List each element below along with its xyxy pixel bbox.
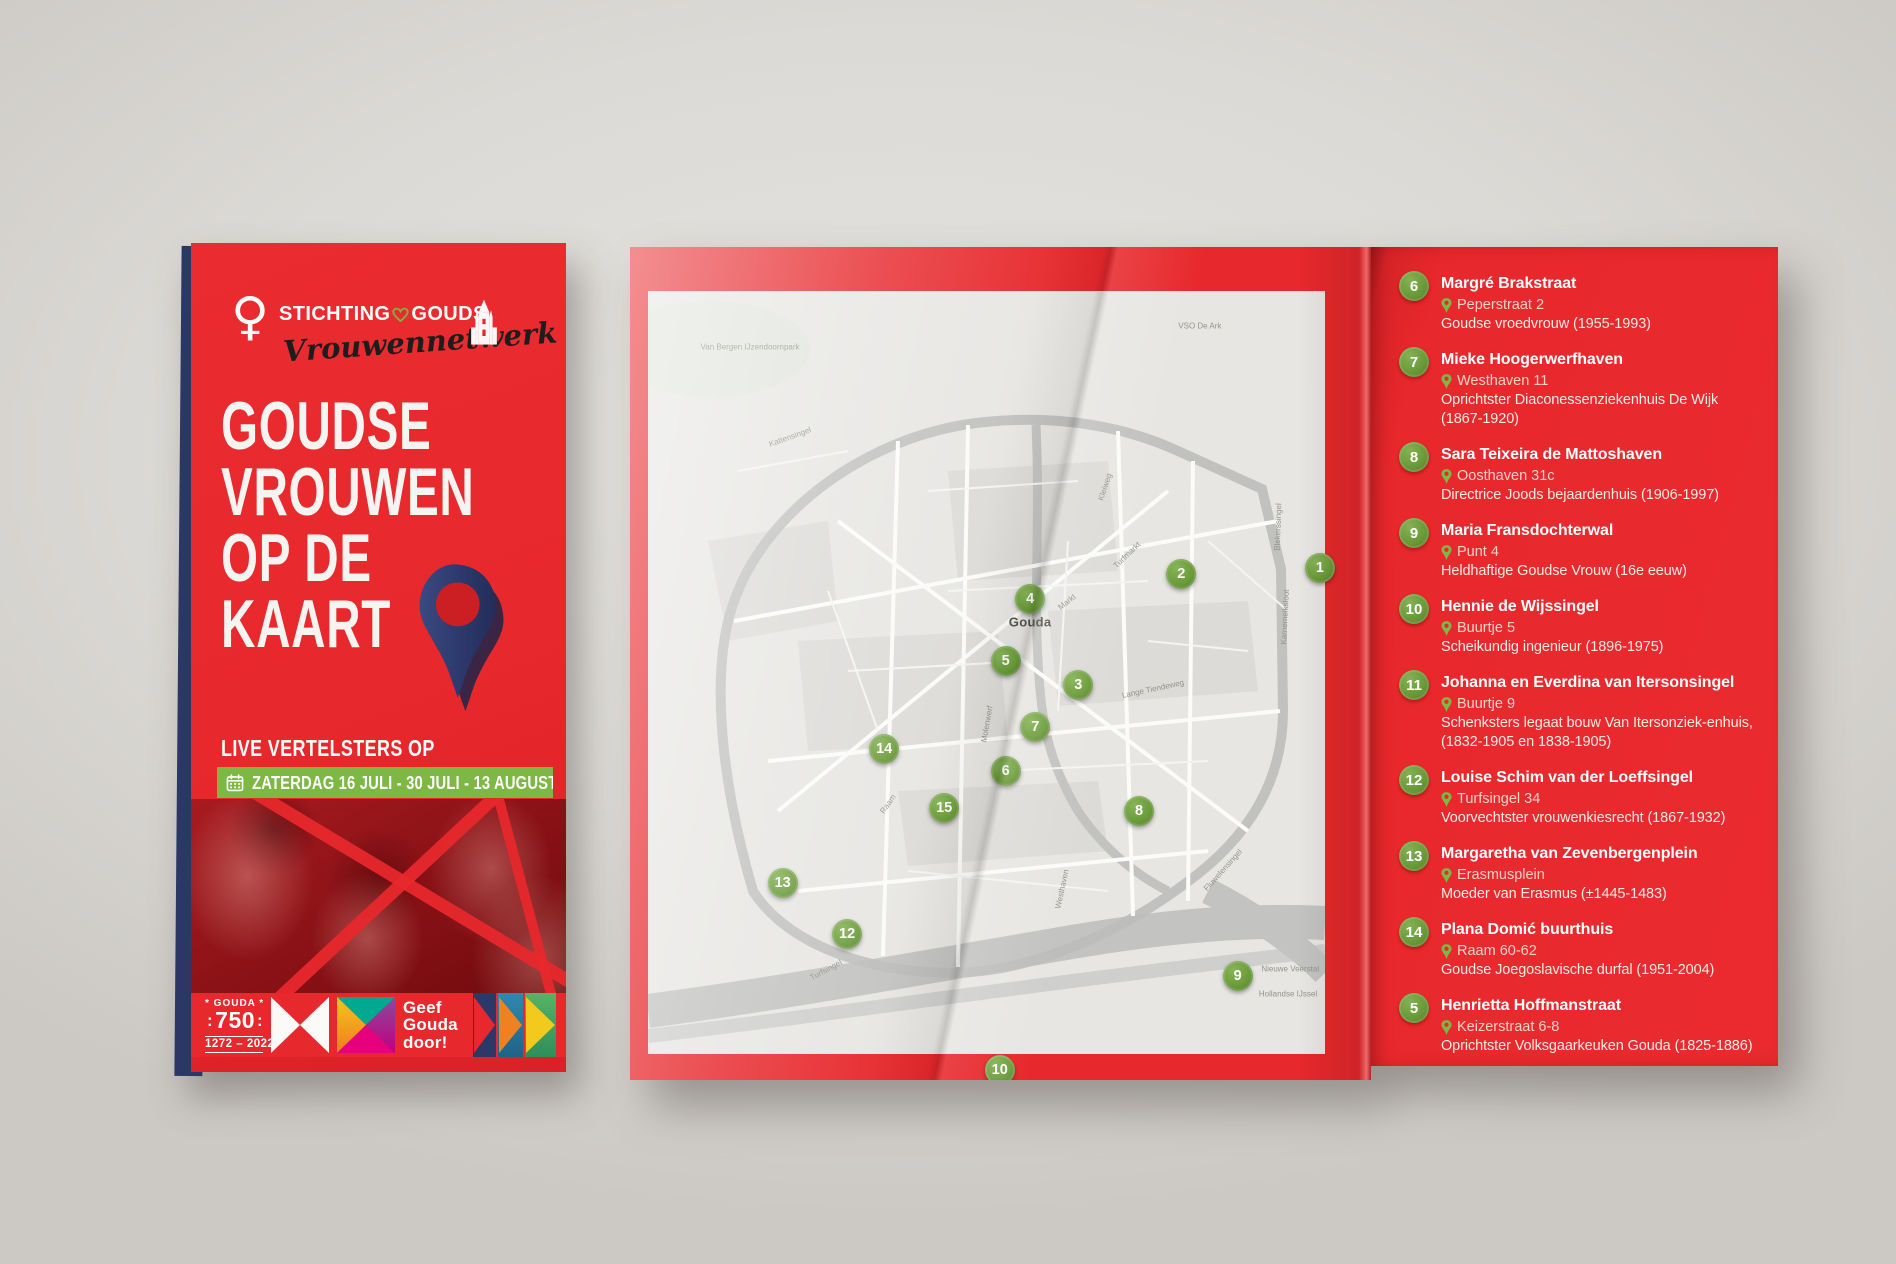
location-address: Westhaven 11 bbox=[1441, 371, 1763, 391]
location-name: Maria Fransdochterwal bbox=[1441, 520, 1763, 542]
location-name: Sara Teixeira de Mattoshaven bbox=[1441, 444, 1763, 466]
location-description: Oprichtster Diaconessenziekenhuis De Wij… bbox=[1441, 391, 1763, 429]
location-address: Keizerstraat 6-8 bbox=[1441, 1017, 1763, 1037]
location-list-item: 12 Louise Schim van der Loeffsingel Turf… bbox=[1399, 767, 1763, 828]
location-pin-icon bbox=[1441, 298, 1452, 313]
location-pin-icon bbox=[1441, 792, 1452, 807]
female-symbol-icon: ♀ bbox=[231, 291, 269, 343]
location-name: Margaretha van Zevenbergenplein bbox=[1441, 843, 1763, 865]
location-text: Margaretha van Zevenbergenplein Erasmusp… bbox=[1441, 843, 1763, 904]
map-page: Van Bergen IJzendoornpark VSO De Ark Kat… bbox=[630, 247, 1371, 1080]
footer-logo-strip: * GOUDA * 750 1272 – 2022 Geef Gouda doo… bbox=[191, 993, 566, 1057]
location-address-text: Buurtje 5 bbox=[1457, 618, 1515, 638]
location-text: Louise Schim van der Loeffsingel Turfsin… bbox=[1441, 767, 1763, 828]
gouda750-logo: * GOUDA * 750 1272 – 2022 bbox=[205, 998, 263, 1053]
location-name: Johanna en Everdina van Itersonsingel bbox=[1441, 672, 1763, 694]
location-address: Raam 60-62 bbox=[1441, 941, 1763, 961]
photo-collage bbox=[191, 799, 566, 993]
location-address: Turfsingel 34 bbox=[1441, 789, 1763, 809]
slogan-line: Gouda bbox=[403, 1016, 458, 1034]
location-pin-icon bbox=[1441, 374, 1452, 389]
slogan-line: door! bbox=[403, 1034, 458, 1052]
slogan-line: Geef bbox=[403, 999, 458, 1017]
location-address-text: Keizerstraat 6-8 bbox=[1457, 1017, 1559, 1037]
location-list-item: 8 Sara Teixeira de Mattoshaven Oosthaven… bbox=[1399, 444, 1763, 505]
location-pin-icon bbox=[1441, 697, 1452, 712]
gouda750-number: 750 bbox=[205, 1009, 263, 1034]
location-text: Maria Fransdochterwal Punt 4 Heldhaftige… bbox=[1441, 520, 1763, 581]
location-address-text: Raam 60-62 bbox=[1457, 941, 1537, 961]
location-name: Louise Schim van der Loeffsingel bbox=[1441, 767, 1763, 789]
location-pin-icon bbox=[1441, 1020, 1452, 1035]
location-list-item: 6 Margré Brakstraat Peperstraat 2 Goudse… bbox=[1399, 273, 1763, 334]
location-text: Margré Brakstraat Peperstraat 2 Goudse v… bbox=[1441, 273, 1763, 334]
front-cover-flyer: ♀ STICHTING GOUDS Vrouwennetwerk bbox=[178, 243, 566, 1072]
location-pin-icon bbox=[1441, 944, 1452, 959]
arrow-icon bbox=[526, 997, 555, 1053]
arrow-tile-orange bbox=[498, 993, 523, 1057]
bowtie-logo-color bbox=[337, 997, 395, 1053]
location-number-badge: 11 bbox=[1399, 670, 1429, 700]
location-list-item: 11 Johanna en Everdina van Itersonsingel… bbox=[1399, 672, 1763, 752]
map-artwork bbox=[648, 291, 1325, 1054]
org-logo-text: STICHTING GOUDS Vrouwennetwerk bbox=[279, 303, 487, 326]
org-prefix: STICHTING bbox=[279, 303, 390, 326]
location-description: Scheikundig ingenieur (1896-1975) bbox=[1441, 638, 1763, 657]
arrow-tiles bbox=[473, 993, 556, 1057]
location-address-text: Erasmusplein bbox=[1457, 865, 1545, 885]
location-text: Mieke Hoogerwerfhaven Westhaven 11 Opric… bbox=[1441, 349, 1763, 429]
arrow-icon bbox=[499, 997, 522, 1053]
location-address: Erasmusplein bbox=[1441, 865, 1763, 885]
location-description: Moeder van Erasmus (±1445-1483) bbox=[1441, 885, 1763, 904]
location-list-item: 13 Margaretha van Zevenbergenplein Erasm… bbox=[1399, 843, 1763, 904]
location-address-text: Buurtje 9 bbox=[1457, 694, 1515, 714]
flyer-front-panel: ♀ STICHTING GOUDS Vrouwennetwerk bbox=[191, 243, 566, 1072]
location-description: Goudse Joegoslavische durfal (1951-2004) bbox=[1441, 961, 1763, 980]
date-banner-text: ZATERDAG 16 JULI - 30 JULI - 13 AUGUSTUS bbox=[252, 772, 553, 794]
location-number-badge: 9 bbox=[1399, 518, 1429, 548]
map-pin-icon bbox=[391, 551, 515, 713]
location-description: Goudse vroedvrouw (1955-1993) bbox=[1441, 315, 1763, 334]
location-description: Schenksters legaat bouw Van Itersonziek-… bbox=[1441, 714, 1763, 752]
map-marker: 10 bbox=[985, 1055, 1015, 1080]
arrow-tile-yellow bbox=[525, 993, 556, 1057]
location-text: Hennie de Wijssingel Buurtje 5 Scheikund… bbox=[1441, 596, 1763, 657]
gouda750-years: 1272 – 2022 bbox=[205, 1036, 263, 1053]
location-address-text: Punt 4 bbox=[1457, 542, 1499, 562]
geef-gouda-door-logo: Geef Gouda door! bbox=[403, 999, 458, 1052]
org-logo: ♀ STICHTING GOUDS Vrouwennetwerk bbox=[231, 295, 507, 373]
location-number-badge: 6 bbox=[1399, 271, 1429, 301]
location-number-badge: 14 bbox=[1399, 917, 1429, 947]
location-name: Henrietta Hoffmanstraat bbox=[1441, 995, 1763, 1017]
location-pin-icon bbox=[1441, 469, 1452, 484]
location-list-item: 10 Hennie de Wijssingel Buurtje 5 Scheik… bbox=[1399, 596, 1763, 657]
subtitle: LIVE VERTELSTERS OP bbox=[221, 735, 435, 762]
location-address-text: Oosthaven 31c bbox=[1457, 466, 1555, 486]
location-address: Buurtje 9 bbox=[1441, 694, 1763, 714]
location-number-badge: 8 bbox=[1399, 442, 1429, 472]
location-pin-icon bbox=[1441, 545, 1452, 560]
location-description: Voorvechtster vrouwenkiesrecht (1867-193… bbox=[1441, 809, 1763, 828]
location-list-item: 7 Mieke Hoogerwerfhaven Westhaven 11 Opr… bbox=[1399, 349, 1763, 429]
location-address: Peperstraat 2 bbox=[1441, 295, 1763, 315]
arrow-tile-red bbox=[473, 993, 496, 1057]
location-address: Buurtje 5 bbox=[1441, 618, 1763, 638]
cityhall-icon bbox=[469, 293, 499, 349]
location-address: Oosthaven 31c bbox=[1441, 466, 1763, 486]
location-pin-icon bbox=[1441, 868, 1452, 883]
location-address-text: Turfsingel 34 bbox=[1457, 789, 1540, 809]
location-number-badge: 10 bbox=[1399, 594, 1429, 624]
location-name: Hennie de Wijssingel bbox=[1441, 596, 1763, 618]
scene: ♀ STICHTING GOUDS Vrouwennetwerk bbox=[0, 0, 1896, 1264]
calendar-icon bbox=[226, 774, 244, 792]
location-number-badge: 5 bbox=[1399, 993, 1429, 1023]
locations-list-panel: 6 Margré Brakstraat Peperstraat 2 Goudse… bbox=[1371, 247, 1778, 1066]
location-name: Mieke Hoogerwerfhaven bbox=[1441, 349, 1763, 371]
location-number-badge: 7 bbox=[1399, 347, 1429, 377]
location-pin-icon bbox=[1441, 621, 1452, 636]
arrow-icon bbox=[474, 997, 495, 1053]
location-text: Henrietta Hoffmanstraat Keizerstraat 6-8… bbox=[1441, 995, 1763, 1056]
location-number-badge: 13 bbox=[1399, 841, 1429, 871]
location-list-item: 14 Plana Domić buurthuis Raam 60-62 Goud… bbox=[1399, 919, 1763, 980]
location-text: Sara Teixeira de Mattoshaven Oosthaven 3… bbox=[1441, 444, 1763, 505]
location-name: Plana Domić buurthuis bbox=[1441, 919, 1763, 941]
location-text: Johanna en Everdina van Itersonsingel Bu… bbox=[1441, 672, 1763, 752]
location-description: Oprichtster Volksgaarkeuken Gouda (1825-… bbox=[1441, 1037, 1763, 1056]
location-description: Directrice Joods bejaardenhuis (1906-199… bbox=[1441, 486, 1763, 505]
location-address: Punt 4 bbox=[1441, 542, 1763, 562]
city-map bbox=[648, 291, 1325, 1054]
locations-list: 6 Margré Brakstraat Peperstraat 2 Goudse… bbox=[1399, 273, 1763, 1056]
location-number-badge: 12 bbox=[1399, 765, 1429, 795]
location-list-item: 9 Maria Fransdochterwal Punt 4 Heldhafti… bbox=[1399, 520, 1763, 581]
location-address-text: Westhaven 11 bbox=[1457, 371, 1548, 391]
location-list-item: 5 Henrietta Hoffmanstraat Keizerstraat 6… bbox=[1399, 995, 1763, 1056]
date-banner: ZATERDAG 16 JULI - 30 JULI - 13 AUGUSTUS bbox=[217, 767, 553, 798]
location-name: Margré Brakstraat bbox=[1441, 273, 1763, 295]
location-text: Plana Domić buurthuis Raam 60-62 Goudse … bbox=[1441, 919, 1763, 980]
city-name-label: Gouda bbox=[1009, 614, 1052, 629]
location-address-text: Peperstraat 2 bbox=[1457, 295, 1544, 315]
title-line: GOUDSE bbox=[221, 393, 474, 459]
location-description: Heldhaftige Goudse Vrouw (16e eeuw) bbox=[1441, 562, 1763, 581]
open-brochure-spread: Van Bergen IJzendoornpark VSO De Ark Kat… bbox=[630, 247, 1778, 1080]
heart-icon bbox=[392, 307, 409, 323]
title-line: VROUWEN bbox=[221, 459, 474, 525]
bowtie-logo-white bbox=[271, 997, 329, 1053]
